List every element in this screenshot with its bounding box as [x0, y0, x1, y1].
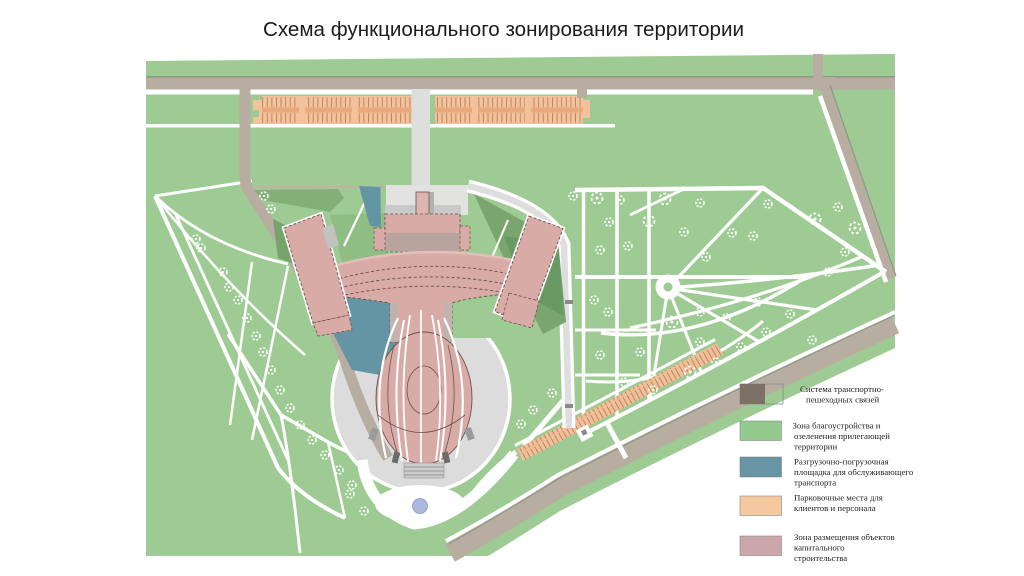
svg-text:территории: территории: [794, 442, 837, 452]
svg-text:озеленения прилегающей: озеленения прилегающей: [794, 431, 890, 441]
svg-text:капитального: капитального: [794, 543, 845, 553]
svg-text:клиентов и персонала: клиентов и персонала: [794, 503, 876, 513]
svg-text:Зона размещения объектов: Зона размещения объектов: [794, 532, 895, 542]
svg-text:Парковочные места для: Парковочные места для: [794, 493, 883, 503]
svg-text:Система транспортно-: Система транспортно-: [800, 384, 884, 394]
svg-text:строительства: строительства: [794, 553, 847, 563]
svg-text:площадка для обслуживающего: площадка для обслуживающего: [794, 467, 914, 477]
svg-text:Зона благоустройства и: Зона благоустройства и: [793, 421, 881, 431]
svg-text:Разгрузочно-погрузочная: Разгрузочно-погрузочная: [794, 457, 889, 467]
svg-text:пешеходных связей: пешеходных связей: [806, 395, 879, 405]
svg-text:транспорта: транспорта: [794, 478, 836, 488]
